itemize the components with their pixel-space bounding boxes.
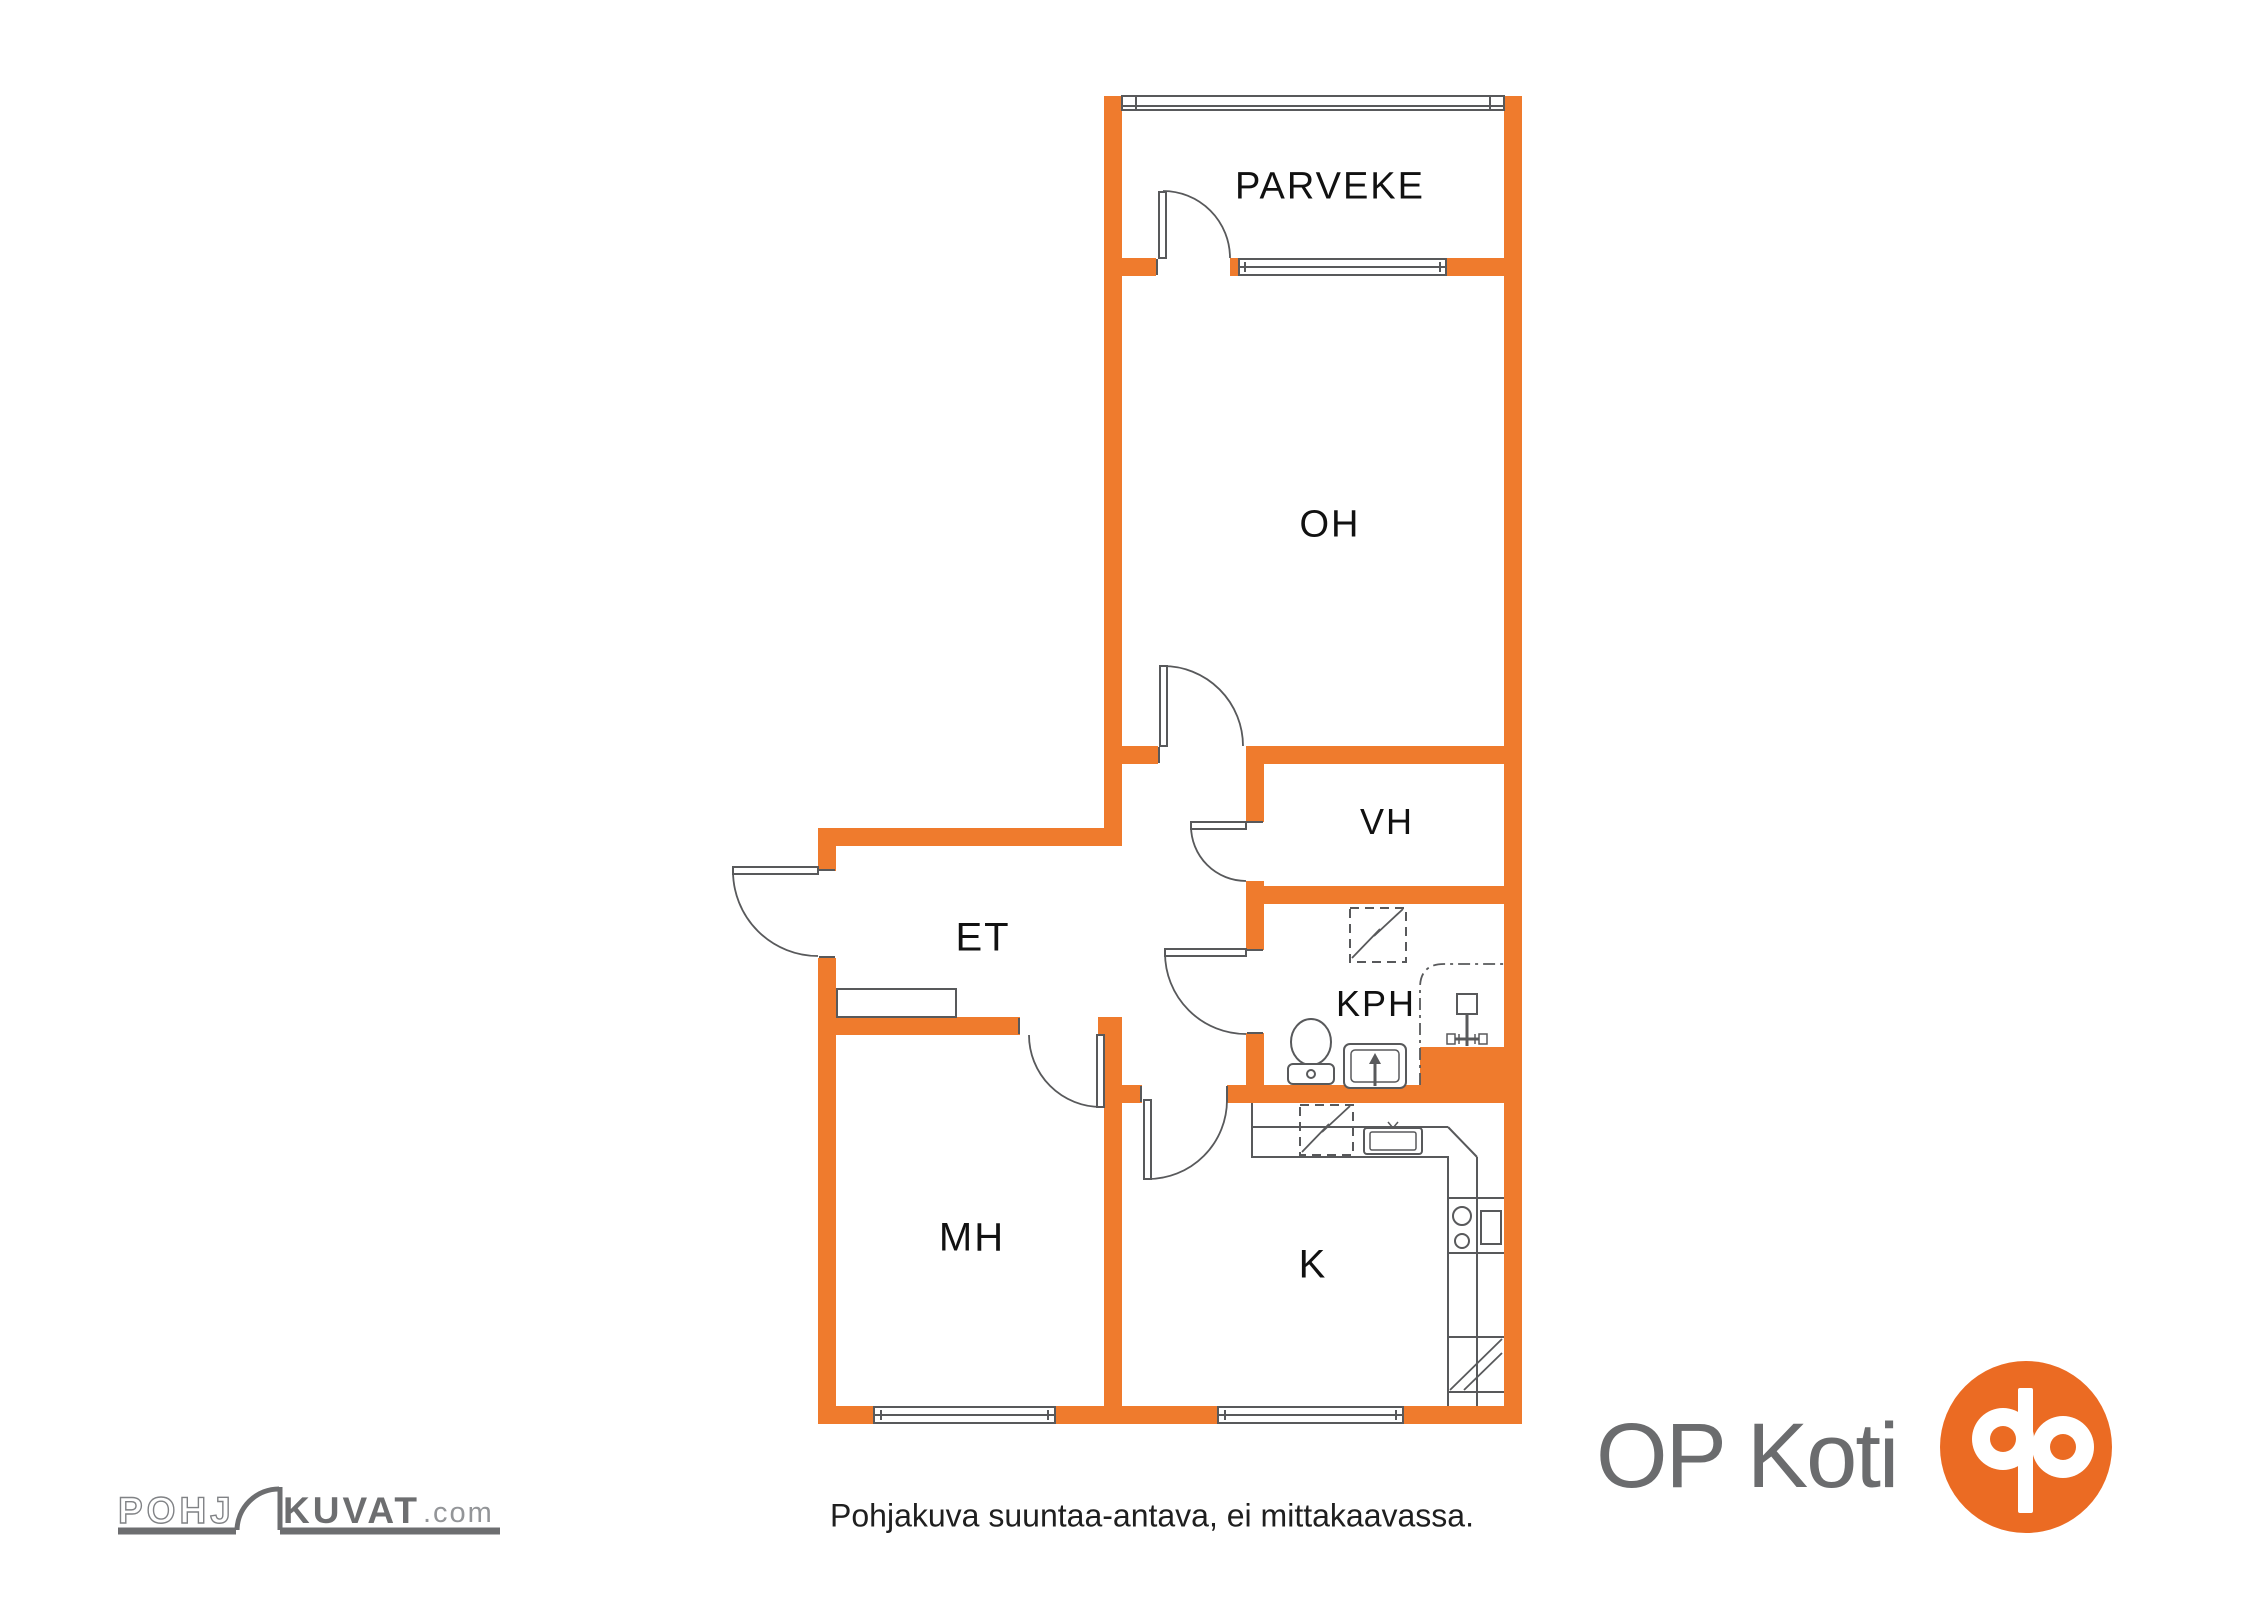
k-door xyxy=(1144,1100,1227,1179)
watermark-pohj: POHJ xyxy=(118,1490,235,1531)
kph-door xyxy=(1165,949,1246,1034)
room-label-et: ET xyxy=(955,916,1010,961)
vh-door xyxy=(1191,822,1246,881)
washing-machine-box xyxy=(1350,908,1406,962)
oh-door xyxy=(1160,666,1243,746)
watermark-dotcom: .com xyxy=(423,1497,494,1529)
room-label-parveke: PARVEKE xyxy=(1235,166,1425,209)
balcony-window xyxy=(1239,259,1446,275)
shower-fixture xyxy=(1447,994,1487,1046)
room-label-vh: VH xyxy=(1360,801,1414,843)
room-label-mh: MH xyxy=(939,1216,1005,1261)
watermark-kuvat: KUVAT xyxy=(283,1490,420,1531)
dishwasher-box xyxy=(1300,1105,1353,1155)
front-door xyxy=(733,867,818,956)
mh-window xyxy=(874,1407,1055,1423)
balcony-railing xyxy=(1122,96,1504,110)
room-label-oh: OH xyxy=(1300,504,1361,547)
balcony-door xyxy=(1159,191,1230,258)
brand-wordmark: OP Koti xyxy=(1596,1404,1897,1509)
mh-door xyxy=(1029,1035,1104,1107)
washbasin xyxy=(1344,1044,1406,1088)
k-window xyxy=(1218,1407,1403,1423)
shower-boundary xyxy=(1420,964,1504,1085)
room-label-k: K xyxy=(1299,1243,1328,1288)
floorplan-page: POHJ KUVAT .com PARVEKE OH VH ET KPH MH … xyxy=(0,0,2262,1600)
pohjakuvat-watermark: POHJ KUVAT .com xyxy=(118,1487,500,1531)
et-closet xyxy=(837,989,956,1017)
op-logo xyxy=(1940,1361,2112,1533)
disclaimer-text: Pohjakuva suuntaa-antava, ei mittakaavas… xyxy=(830,1498,1474,1535)
linework-layer: POHJ KUVAT .com xyxy=(0,0,2262,1600)
wall-end-caps xyxy=(819,259,1263,1102)
toilet xyxy=(1288,1019,1334,1084)
room-label-kph: KPH xyxy=(1336,983,1416,1025)
